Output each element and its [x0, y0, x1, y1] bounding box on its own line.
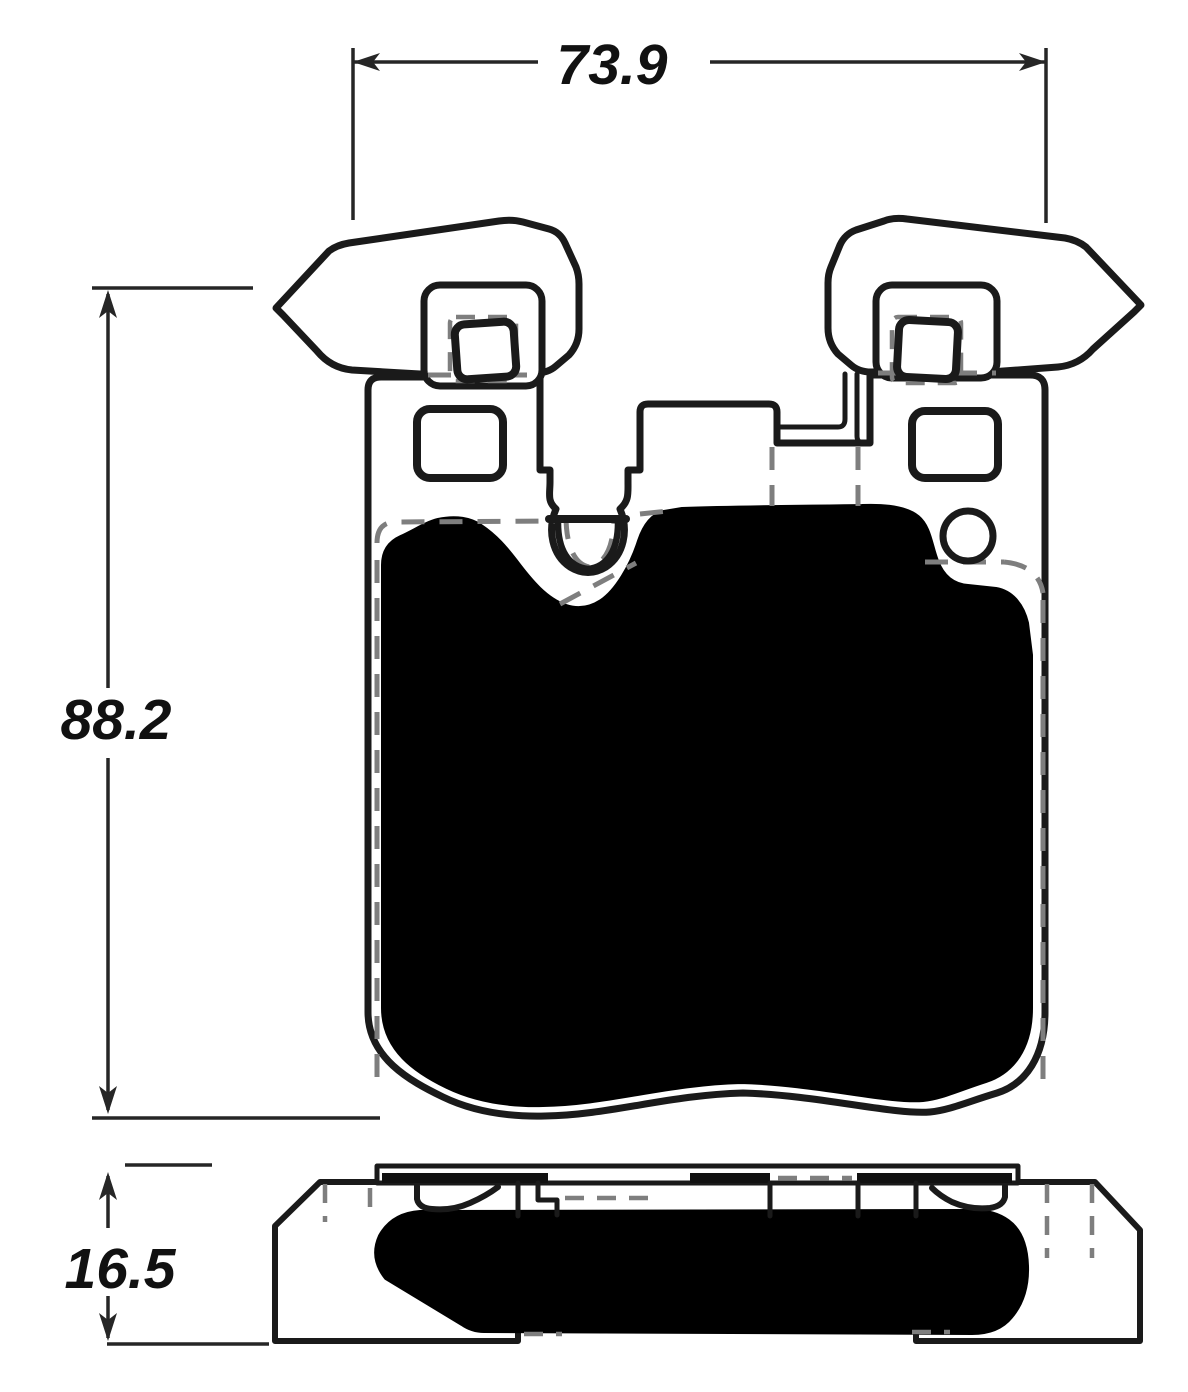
right-abutment-hole [912, 411, 998, 478]
height-dimension-label: 88.2 [61, 688, 172, 752]
width-dimension-label: 73.9 [557, 33, 668, 97]
sensor-hole [943, 511, 993, 561]
brake-pad-technical-drawing: 73.9 88.2 16.5 [0, 0, 1188, 1392]
friction-material-side [376, 1211, 1027, 1333]
dimension-thickness: 16.5 [65, 1165, 269, 1344]
backplate-band [382, 1173, 548, 1183]
brake-pad-drawing-page: 73.9 88.2 16.5 [0, 0, 1188, 1392]
friction-material [383, 506, 1031, 1105]
backplate-band [857, 1173, 1012, 1183]
left-tower-hole [454, 321, 517, 380]
right-tower-hole [897, 319, 959, 379]
thickness-dimension-label: 16.5 [65, 1237, 177, 1301]
center-tab-bar [779, 374, 864, 443]
left-abutment-hole [417, 409, 503, 478]
backplate-band [690, 1173, 770, 1183]
front-view [276, 218, 1141, 1116]
dimension-height: 88.2 [61, 288, 380, 1118]
dimension-width: 73.9 [353, 33, 1046, 223]
side-view [275, 1166, 1140, 1341]
